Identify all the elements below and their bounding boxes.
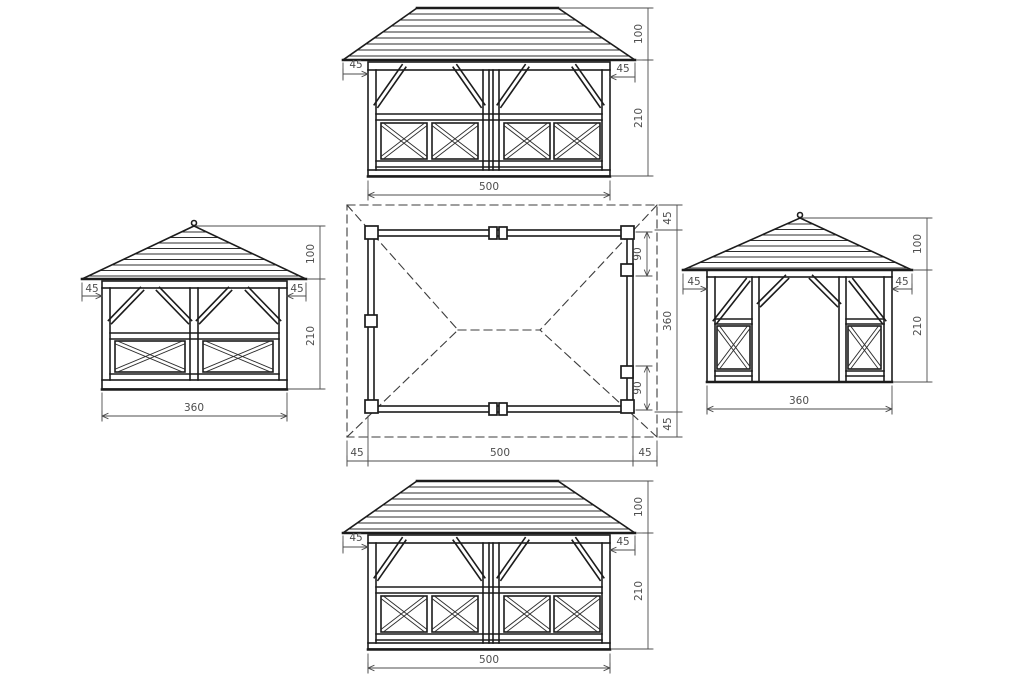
plan-overhang-bottom-label: 45 bbox=[662, 417, 674, 430]
rear-roof-height-label: 100 bbox=[633, 497, 645, 517]
left-wall-height-label: 210 bbox=[305, 326, 317, 346]
plan-post bbox=[489, 227, 497, 239]
left-dimensions: 3601002104545 bbox=[82, 226, 325, 421]
plan-overhang-top-label: 45 bbox=[662, 211, 674, 224]
right-dimensions: 3601002104545 bbox=[683, 218, 932, 414]
plan-width-label: 500 bbox=[490, 447, 510, 459]
plan-view: 909045360454550045 bbox=[347, 205, 682, 466]
rear-overhang-right-label: 45 bbox=[616, 536, 629, 548]
rear-hip-roof bbox=[340, 481, 638, 533]
plan-post bbox=[365, 400, 378, 413]
rear-overhang-left-label: 45 bbox=[349, 532, 362, 544]
left-roof-height-label: 100 bbox=[305, 244, 317, 264]
plan-door-offset-top-label: 90 bbox=[632, 247, 644, 260]
plan-door-offset-bottom-label: 90 bbox=[632, 381, 644, 394]
plan-depth-label: 360 bbox=[662, 311, 674, 331]
front-elevation-view: 5001002104545 bbox=[340, 8, 653, 200]
right-pyramid-roof bbox=[681, 213, 914, 271]
right-overhang-right-label: 45 bbox=[895, 276, 908, 288]
front-hip-roof bbox=[340, 8, 638, 60]
rear-width-label: 500 bbox=[479, 654, 499, 666]
front-overhang-right-label: 45 bbox=[616, 63, 629, 75]
plan-overhang-left-label: 45 bbox=[350, 447, 363, 459]
plan-post bbox=[365, 315, 377, 327]
left-railing bbox=[110, 333, 279, 374]
left-overhang-right-label: 45 bbox=[290, 283, 303, 295]
front-roof-height-label: 100 bbox=[633, 24, 645, 44]
plan-wall bbox=[365, 226, 634, 415]
plan-post bbox=[499, 403, 507, 415]
front-width-label: 500 bbox=[479, 181, 499, 193]
right-width-label: 360 bbox=[789, 395, 809, 407]
plan-post bbox=[621, 226, 634, 239]
plan-post bbox=[621, 366, 633, 378]
right-knee-braces bbox=[713, 275, 886, 323]
left-overhang-left-label: 45 bbox=[85, 283, 98, 295]
rear-wall-height-label: 210 bbox=[633, 581, 645, 601]
right-side-panels bbox=[715, 319, 884, 376]
plan-post bbox=[499, 227, 507, 239]
plan-post bbox=[621, 264, 633, 276]
left-width-label: 360 bbox=[184, 402, 204, 414]
plan-post bbox=[365, 226, 378, 239]
gazebo-technical-drawing: 5001002104545500100210454536010021045453… bbox=[0, 0, 1024, 683]
gazebo-drawing-page: 5001002104545500100210454536010021045453… bbox=[0, 0, 1024, 683]
left-elevation-view: 3601002104545 bbox=[80, 221, 325, 422]
right-roof-height-label: 100 bbox=[912, 234, 924, 254]
rear-elevation-view: 5001002104545 bbox=[340, 481, 653, 673]
plan-post bbox=[621, 400, 634, 413]
left-knee-braces bbox=[108, 287, 280, 323]
right-wall-height-label: 210 bbox=[912, 316, 924, 336]
front-wall-height-label: 210 bbox=[633, 108, 645, 128]
plan-overhang-right-label: 45 bbox=[638, 447, 651, 459]
plan-dimensions: 909045360454550045 bbox=[347, 205, 682, 466]
front-overhang-left-label: 45 bbox=[349, 59, 362, 71]
right-elevation-view: 3601002104545 bbox=[681, 213, 932, 415]
left-pyramid-roof bbox=[80, 221, 308, 280]
plan-post bbox=[489, 403, 497, 415]
right-overhang-left-label: 45 bbox=[687, 276, 700, 288]
